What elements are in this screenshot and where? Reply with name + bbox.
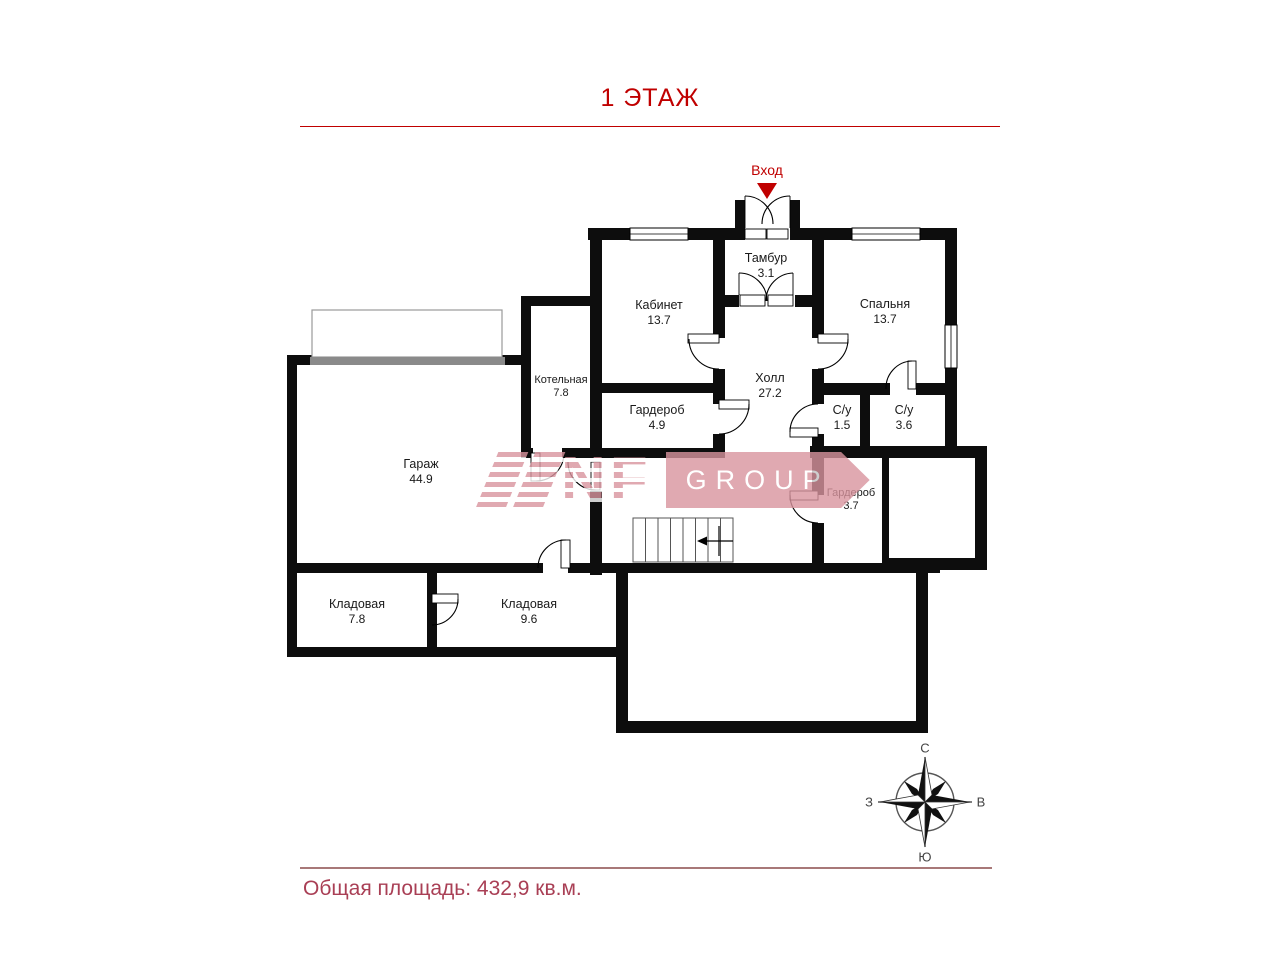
garage-door xyxy=(310,310,505,365)
floor-plan-drawing xyxy=(0,0,1280,960)
room-label-kabinet: Кабинет13.7 xyxy=(635,298,683,328)
room-label-tambur: Тамбур3.1 xyxy=(745,251,787,281)
total-area-text: Общая площадь: 432,9 кв.м. xyxy=(303,877,582,901)
compass-south-label: Ю xyxy=(918,850,931,865)
room-label-garderob-49: Гардероб4.9 xyxy=(630,403,685,433)
compass-north-label: С xyxy=(920,741,929,756)
entrance-arrow-icon xyxy=(757,183,777,199)
footer-divider xyxy=(300,867,992,869)
compass-west-label: З xyxy=(865,795,873,810)
walls-group xyxy=(287,200,987,733)
room-label-su-36: С/у3.6 xyxy=(895,403,914,433)
room-label-kladovaya-78: Кладовая7.8 xyxy=(329,597,385,627)
compass-rose-icon xyxy=(878,757,972,847)
room-label-garderob-37: Гардероб3.7 xyxy=(827,487,875,513)
compass-east-label: В xyxy=(977,795,986,810)
room-label-garazh: Гараж44.9 xyxy=(403,457,438,487)
room-label-holl: Холл27.2 xyxy=(755,371,784,401)
stairs xyxy=(633,518,733,562)
room-label-kotelnaya: Котельная7.8 xyxy=(534,374,587,400)
room-label-spalnya: Спальня13.7 xyxy=(860,297,910,327)
room-label-kladovaya-96: Кладовая9.6 xyxy=(501,597,557,627)
room-label-su-15: С/у1.5 xyxy=(833,403,852,433)
floor-plan-page: 1 ЭТАЖ Вход xyxy=(0,0,1280,960)
